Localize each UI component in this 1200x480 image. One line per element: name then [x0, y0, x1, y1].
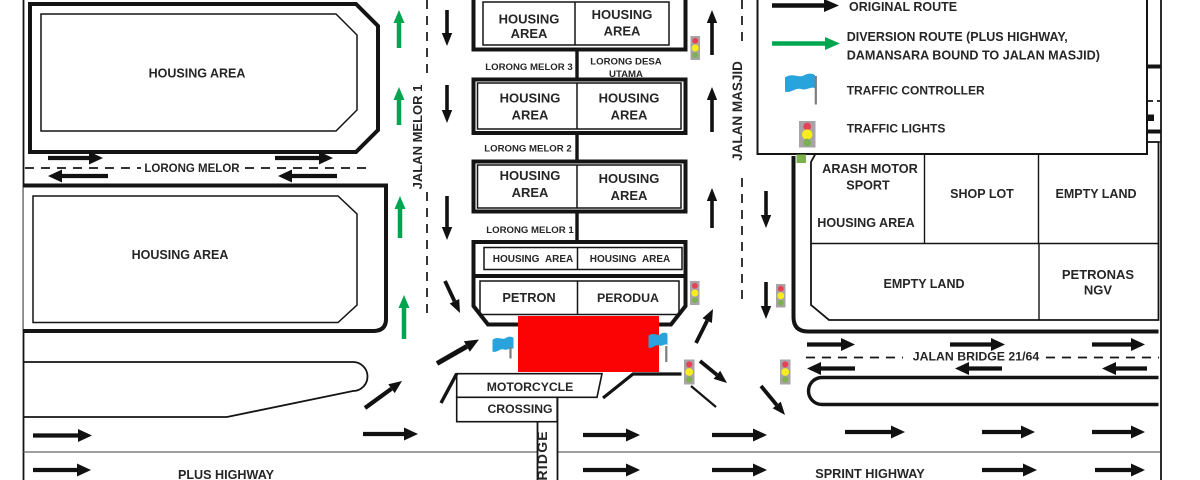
svg-text:HOUSING AREA: HOUSING AREA — [493, 254, 574, 265]
svg-text:JALAN MASJID: JALAN MASJID — [730, 61, 745, 161]
svg-text:AREA: AREA — [511, 26, 548, 41]
svg-text:HOUSING AREA: HOUSING AREA — [132, 248, 229, 262]
svg-text:PLUS HIGHWAY: PLUS HIGHWAY — [178, 468, 275, 480]
svg-text:LORONG MELOR 1: LORONG MELOR 1 — [486, 225, 574, 236]
svg-text:TRAFFIC LIGHTS: TRAFFIC LIGHTS — [847, 122, 946, 136]
svg-text:SPRINT HIGHWAY: SPRINT HIGHWAY — [815, 467, 925, 480]
svg-text:DIVERSION ROUTE (PLUS HIGHWAY,: DIVERSION ROUTE (PLUS HIGHWAY, — [847, 30, 1068, 44]
svg-text:HOUSING: HOUSING — [592, 7, 653, 22]
svg-text:HOUSING AREA: HOUSING AREA — [590, 254, 671, 265]
svg-text:PETRONAS: PETRONAS — [1062, 267, 1135, 282]
svg-text:HOUSING AREA: HOUSING AREA — [149, 67, 246, 81]
svg-text:HOUSING: HOUSING — [500, 168, 561, 183]
svg-text:LORONG MELOR: LORONG MELOR — [144, 163, 240, 175]
svg-text:HOUSING: HOUSING — [499, 12, 560, 27]
svg-text:HOUSING: HOUSING — [599, 171, 660, 186]
svg-text:BRIDGE: BRIDGE — [534, 430, 550, 480]
svg-text:AREA: AREA — [512, 185, 549, 200]
svg-text:AREA: AREA — [611, 188, 648, 203]
svg-text:SPORT: SPORT — [846, 179, 890, 193]
svg-text:ORIGINAL ROUTE: ORIGINAL ROUTE — [849, 0, 957, 14]
svg-text:EMPTY LAND: EMPTY LAND — [1055, 187, 1136, 201]
svg-text:HOUSING: HOUSING — [500, 91, 561, 106]
svg-text:AREA: AREA — [512, 108, 549, 123]
svg-text:JALAN BRIDGE 21/64: JALAN BRIDGE 21/64 — [913, 350, 1040, 364]
svg-text:ARASH MOTOR: ARASH MOTOR — [822, 162, 918, 176]
svg-text:TRAFFIC CONTROLLER: TRAFFIC CONTROLLER — [847, 84, 985, 98]
svg-text:DAMANSARA BOUND TO JALAN MASJI: DAMANSARA BOUND TO JALAN MASJID) — [847, 49, 1100, 63]
svg-text:HOUSING AREA: HOUSING AREA — [817, 216, 915, 230]
svg-text:AREA: AREA — [604, 24, 641, 39]
svg-text:PERODUA: PERODUA — [597, 291, 659, 305]
svg-text:PETRON: PETRON — [502, 290, 555, 305]
svg-text:CROSSING: CROSSING — [487, 402, 552, 416]
svg-text:HOUSING: HOUSING — [599, 91, 660, 106]
svg-text:EMPTY LAND: EMPTY LAND — [883, 277, 964, 291]
svg-text:NGV: NGV — [1084, 283, 1113, 298]
svg-text:LORONG MELOR 2: LORONG MELOR 2 — [484, 144, 571, 155]
svg-text:JALAN MELOR 1: JALAN MELOR 1 — [410, 85, 425, 190]
svg-text:LORONG DESA: LORONG DESA — [590, 57, 661, 68]
svg-text:LORONG MELOR 3: LORONG MELOR 3 — [485, 62, 572, 73]
svg-text:SHOP LOT: SHOP LOT — [950, 187, 1014, 201]
svg-text:AREA: AREA — [611, 108, 648, 123]
svg-text:MOTORCYCLE: MOTORCYCLE — [487, 380, 573, 394]
